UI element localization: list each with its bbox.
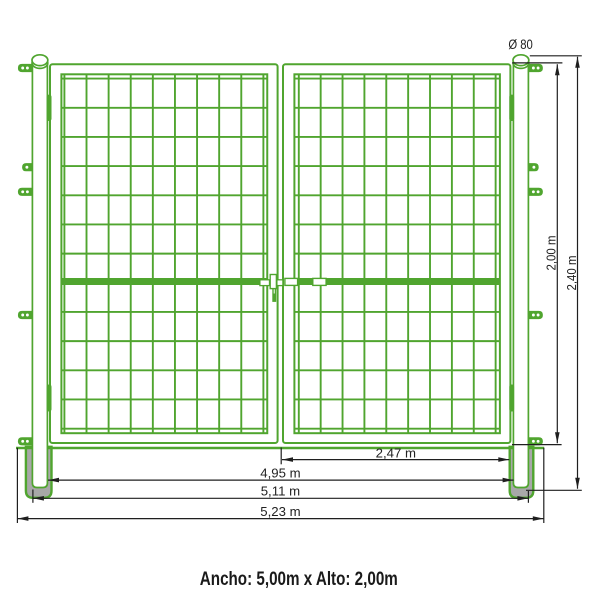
svg-text:4,95 m: 4,95 m bbox=[260, 465, 300, 480]
svg-text:2,00 m: 2,00 m bbox=[544, 235, 559, 270]
svg-text:5,23 m: 5,23 m bbox=[260, 504, 300, 519]
svg-text:5,11 m: 5,11 m bbox=[261, 484, 300, 499]
svg-text:2,40 m: 2,40 m bbox=[564, 255, 579, 290]
svg-text:Ancho: 5,00m x Alto: 2,00m: Ancho: 5,00m x Alto: 2,00m bbox=[200, 568, 398, 590]
svg-text:2,47 m: 2,47 m bbox=[376, 445, 416, 460]
svg-text:Ø 80: Ø 80 bbox=[508, 37, 533, 52]
